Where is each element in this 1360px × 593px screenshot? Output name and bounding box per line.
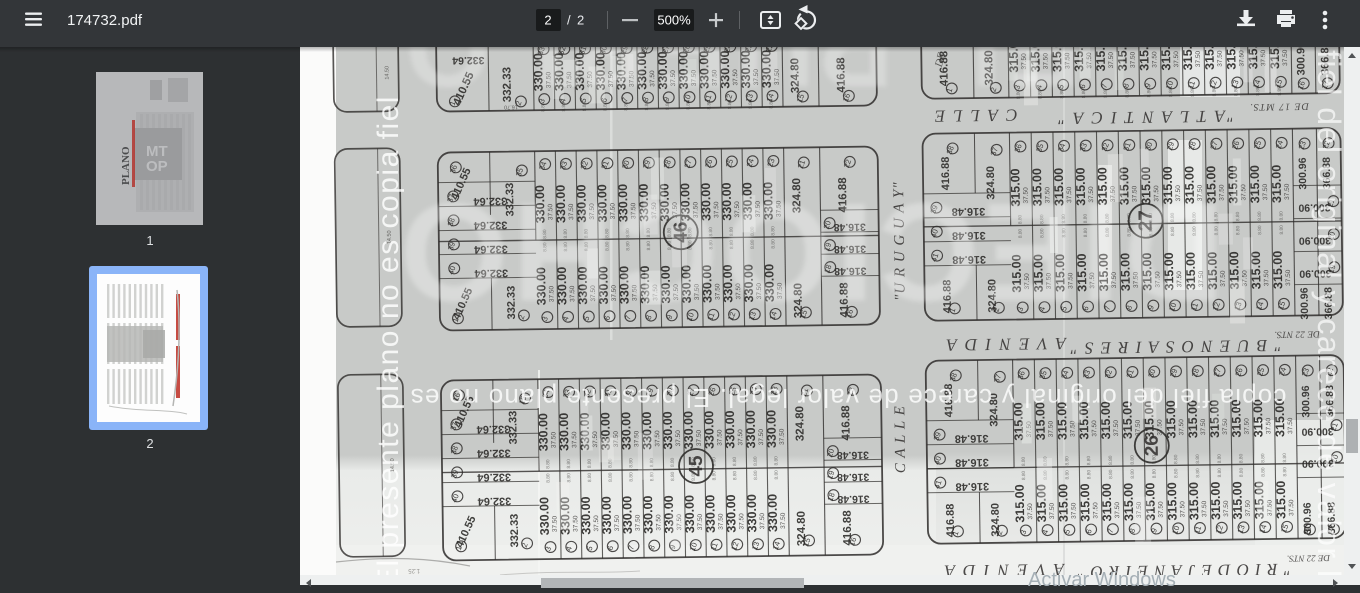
svg-text:330.00: 330.00	[764, 410, 779, 448]
svg-text:315.00: 315.00	[1165, 482, 1180, 520]
svg-text:37.50: 37.50	[779, 428, 786, 445]
svg-text:315.00: 315.00	[1078, 483, 1093, 521]
svg-text:8.80: 8.80	[608, 472, 614, 482]
svg-text:330.00: 330.00	[641, 495, 656, 533]
svg-text:330.00: 330.00	[620, 496, 635, 534]
svg-text:8.80: 8.80	[1260, 467, 1266, 477]
svg-text:174732.pdf: 174732.pdf	[67, 12, 143, 29]
svg-text:8.80: 8.80	[1086, 455, 1092, 465]
svg-text:315.00: 315.00	[1269, 165, 1284, 203]
svg-text:37.50: 37.50	[1263, 269, 1270, 286]
svg-text:37.50: 37.50	[1091, 420, 1098, 437]
svg-text:8.80: 8.80	[1065, 470, 1071, 480]
svg-text:330.00: 330.00	[537, 497, 552, 535]
svg-text:45: 45	[686, 455, 707, 477]
svg-text:8.80: 8.80	[1081, 89, 1087, 99]
svg-text:8.80: 8.80	[1173, 454, 1179, 464]
svg-text:37.50: 37.50	[1217, 50, 1224, 67]
svg-text:copia fiel del original y care: copia fiel del original y carece de valo…	[410, 383, 1287, 413]
svg-text:316.48: 316.48	[837, 471, 869, 483]
svg-text:26: 26	[1142, 435, 1163, 456]
svg-text:8.80: 8.80	[1282, 453, 1288, 463]
svg-text:330.00: 330.00	[536, 413, 551, 451]
svg-text:8.80: 8.80	[566, 473, 572, 483]
svg-text:37.50: 37.50	[1284, 183, 1291, 200]
svg-text:330.00: 330.00	[579, 496, 594, 534]
svg-text:EL PUEBLO: EL PUEBLO	[399, 47, 1081, 109]
svg-text:8.80: 8.80	[1152, 469, 1158, 479]
svg-text:315.00: 315.00	[1056, 484, 1071, 522]
svg-text:37.50: 37.50	[1287, 417, 1294, 434]
svg-text:8.80: 8.80	[1277, 86, 1283, 96]
svg-text:316.48: 316.48	[955, 456, 989, 468]
svg-text:8.80: 8.80	[1260, 453, 1266, 463]
svg-text:37.50: 37.50	[1243, 418, 1250, 435]
svg-text:315.00: 315.00	[1271, 251, 1286, 289]
svg-text:37.50: 37.50	[1201, 500, 1208, 517]
svg-text:315.00: 315.00	[1230, 481, 1245, 519]
svg-text:37.50: 37.50	[1113, 420, 1120, 437]
svg-text:8.80: 8.80	[1195, 454, 1201, 464]
svg-text:315.00: 315.00	[1122, 483, 1137, 521]
svg-text:316.48: 316.48	[837, 449, 869, 461]
svg-text:330.00: 330.00	[723, 410, 738, 448]
svg-text:37.50: 37.50	[1195, 50, 1202, 67]
svg-text:37.50: 37.50	[1130, 51, 1137, 68]
svg-text:8.80: 8.80	[1021, 470, 1027, 480]
svg-text:DE 17 MTS.: DE 17 MTS.	[1249, 100, 1310, 112]
svg-text:8.80: 8.80	[753, 456, 759, 466]
svg-text:1.25: 1.25	[408, 567, 420, 573]
svg-text:14.50: 14.50	[384, 66, 390, 80]
svg-text:315.00: 315.00	[1248, 165, 1263, 203]
svg-text:8.80: 8.80	[1279, 211, 1285, 221]
svg-text:315.00: 315.00	[1209, 482, 1224, 520]
svg-text:8.80: 8.80	[670, 471, 676, 481]
svg-text:8.80: 8.80	[1146, 88, 1152, 98]
svg-text:8.80: 8.80	[1168, 87, 1174, 97]
svg-text:37.50: 37.50	[1179, 501, 1186, 518]
svg-text:332.33: 332.33	[509, 514, 521, 548]
svg-text:300.96: 300.96	[1300, 385, 1312, 417]
svg-text:8.80: 8.80	[1239, 467, 1245, 477]
svg-text:8.80: 8.80	[1255, 86, 1261, 96]
svg-text:300.96: 300.96	[1297, 157, 1309, 189]
svg-text:330.00: 330.00	[702, 411, 717, 449]
svg-text:37.50: 37.50	[1151, 51, 1158, 68]
svg-text:8.80: 8.80	[1086, 469, 1092, 479]
svg-text:8.80: 8.80	[1125, 88, 1131, 98]
svg-text:315.00: 315.00	[1013, 484, 1028, 522]
svg-text:315.00: 315.00	[1187, 482, 1202, 520]
svg-text:8.80: 8.80	[1212, 87, 1218, 97]
svg-text:37.50: 37.50	[1262, 183, 1269, 200]
svg-text:8.80: 8.80	[1235, 211, 1241, 221]
svg-text:8.80: 8.80	[566, 459, 572, 469]
svg-text:8.80: 8.80	[774, 456, 780, 466]
svg-text:37.50: 37.50	[1265, 417, 1272, 434]
svg-text:500%: 500%	[657, 13, 691, 28]
svg-text:8.80: 8.80	[1279, 225, 1285, 235]
svg-text:8.80: 8.80	[545, 459, 551, 469]
svg-text:C A L L E: C A L L E	[892, 405, 909, 473]
svg-text:330.00: 330.00	[724, 494, 739, 532]
svg-text:37.50: 37.50	[1285, 269, 1292, 286]
svg-text:330.00: 330.00	[600, 496, 615, 534]
svg-text:330.00: 330.00	[557, 413, 572, 451]
svg-text:300.96: 300.96	[1299, 287, 1311, 319]
svg-text:8.80: 8.80	[1238, 453, 1244, 463]
svg-text:37.50: 37.50	[1173, 51, 1180, 68]
svg-text:37.50: 37.50	[1245, 500, 1252, 517]
svg-text:8.80: 8.80	[1233, 86, 1239, 96]
svg-text:37.50: 37.50	[780, 512, 787, 529]
svg-text:8.80: 8.80	[1108, 455, 1114, 465]
svg-text:8.80: 8.80	[1257, 211, 1263, 221]
svg-text:8.80: 8.80	[1235, 225, 1241, 235]
svg-text:316.48: 316.48	[955, 480, 989, 492]
svg-text:8.80: 8.80	[1257, 225, 1263, 235]
svg-text:8.80: 8.80	[1173, 468, 1179, 478]
svg-text:37.50: 37.50	[1070, 502, 1077, 519]
svg-text:8.80: 8.80	[1130, 455, 1136, 465]
svg-text:A V E N I D A: A V E N I D A	[945, 334, 1068, 355]
svg-text:8.80: 8.80	[545, 473, 551, 483]
svg-text:8.80: 8.80	[1108, 469, 1114, 479]
svg-text:37.50: 37.50	[1027, 503, 1034, 520]
svg-text:330.00: 330.00	[744, 410, 759, 448]
svg-text:2: 2	[544, 13, 551, 28]
svg-text:315.00: 315.00	[1100, 483, 1115, 521]
svg-text:37.50: 37.50	[1114, 502, 1121, 519]
svg-text:330.00: 330.00	[619, 412, 634, 450]
svg-text:8.80: 8.80	[732, 470, 738, 480]
svg-text:8.80: 8.80	[1064, 456, 1070, 466]
svg-text:DIECIOCHO: DIECIOCHO	[395, 174, 1224, 331]
svg-text:8.80: 8.80	[753, 470, 759, 480]
svg-text:37.50: 37.50	[1288, 499, 1295, 516]
svg-text:37.50: 37.50	[1178, 419, 1185, 436]
svg-text:8.80: 8.80	[628, 472, 634, 482]
svg-text:332.64: 332.64	[476, 423, 511, 435]
svg-text:" B U E N O S A I R E S ": " B U E N O S A I R E S "	[1069, 336, 1282, 358]
svg-text:330.00: 330.00	[745, 494, 760, 532]
svg-text:37.50: 37.50	[1092, 502, 1099, 519]
svg-text:8.80: 8.80	[1217, 454, 1223, 464]
svg-text:315.00: 315.00	[1274, 481, 1289, 519]
svg-text:8.80: 8.80	[628, 458, 634, 468]
svg-text:330.00: 330.00	[661, 411, 676, 449]
svg-text:2: 2	[577, 13, 584, 28]
svg-text:37.50: 37.50	[1108, 52, 1115, 69]
svg-text:8.80: 8.80	[1195, 468, 1201, 478]
svg-text:8.80: 8.80	[670, 457, 676, 467]
svg-text:316.48: 316.48	[955, 432, 989, 444]
svg-text:332.64: 332.64	[476, 471, 511, 483]
svg-text:8.80: 8.80	[587, 458, 593, 468]
svg-text:8.80: 8.80	[1217, 468, 1223, 478]
svg-text:8.80: 8.80	[1282, 467, 1288, 477]
svg-text:330.00: 330.00	[766, 494, 781, 532]
svg-text:"A T L A N T I C A ": "A T L A N T I C A "	[1056, 106, 1234, 127]
svg-text:8.80: 8.80	[1103, 88, 1109, 98]
svg-text:37.50: 37.50	[1048, 421, 1055, 438]
svg-text:8.80: 8.80	[774, 470, 780, 480]
svg-text:OP: OP	[146, 158, 168, 175]
svg-text:37.50: 37.50	[1049, 502, 1056, 519]
svg-text:El presente plano no es copia: El presente plano no es copia fiel	[372, 95, 405, 585]
svg-text:37.50: 37.50	[1223, 500, 1230, 517]
svg-text:PLANO: PLANO	[120, 146, 132, 185]
svg-text:8.80: 8.80	[1130, 469, 1136, 479]
svg-text:332.64: 332.64	[477, 495, 512, 507]
svg-text:316.48: 316.48	[837, 493, 869, 505]
svg-text:332.64: 332.64	[476, 447, 511, 459]
svg-text:/: /	[567, 13, 571, 28]
svg-text:37.50: 37.50	[1200, 418, 1207, 435]
svg-text:8.80: 8.80	[732, 456, 738, 466]
svg-text:fiel del original y carece de: fiel del original y carece de valor lega…	[1311, 50, 1347, 585]
svg-text:330.00: 330.00	[703, 495, 718, 533]
svg-text:8.80: 8.80	[1021, 456, 1027, 466]
svg-text:330.00: 330.00	[681, 411, 696, 449]
svg-text:8.80: 8.80	[587, 472, 593, 482]
svg-text:8.80: 8.80	[1190, 87, 1196, 97]
svg-text:37.50: 37.50	[1158, 501, 1165, 518]
